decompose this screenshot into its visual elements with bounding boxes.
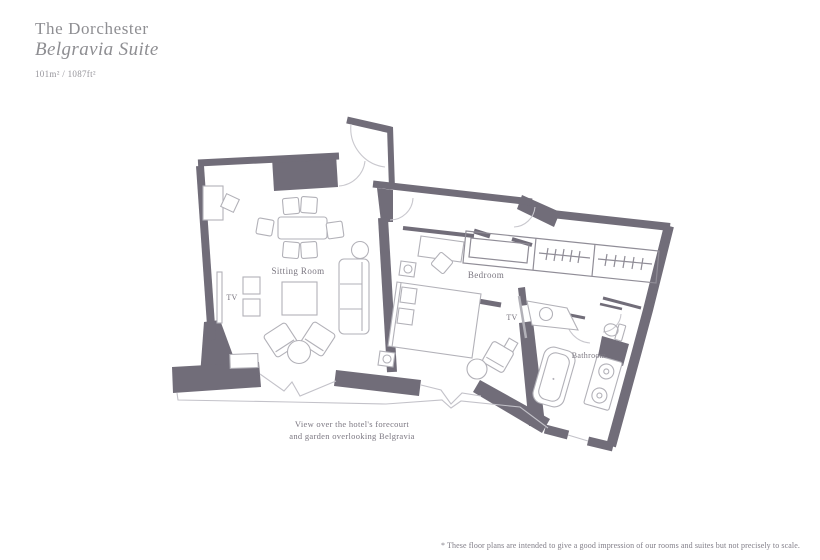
view-note-line1: View over the hotel's forecourt <box>295 419 410 429</box>
dining-chair <box>326 221 344 239</box>
sitting-door-arc <box>339 161 365 186</box>
bedroom-label: Bedroom <box>468 270 504 280</box>
tv-label-sitting: TV <box>226 293 237 302</box>
bathroom-label: Bathroom <box>572 351 607 360</box>
wall-bedroom-top <box>403 228 474 236</box>
dining-table <box>278 217 327 239</box>
pillow <box>400 287 417 304</box>
armchair <box>243 277 260 294</box>
tv-label-bedroom: TV <box>506 313 517 322</box>
sitting-room-label: Sitting Room <box>271 266 324 276</box>
wall-outer-top-a <box>373 184 532 202</box>
low-console <box>230 354 258 369</box>
wall-divider-stub <box>377 188 393 222</box>
dining-chair <box>282 241 299 258</box>
bath-window-line <box>568 435 588 441</box>
sliding-track-b2 <box>600 304 622 309</box>
coffee-table <box>282 282 317 315</box>
dining-chair <box>282 197 299 214</box>
closet-divider-2 <box>592 244 595 276</box>
wall-divider <box>383 218 392 372</box>
lamp <box>404 265 412 273</box>
bed <box>388 282 481 358</box>
lamp <box>383 355 391 363</box>
wall-bath-bottom-a <box>588 441 613 447</box>
vanity-double-sink <box>584 355 623 410</box>
view-note-line2: and garden overlooking Belgravia <box>289 431 415 441</box>
dining-chair <box>256 218 275 237</box>
dining-chair <box>300 196 317 213</box>
wall-entry-vertical <box>390 127 392 189</box>
bathtub <box>531 345 578 410</box>
wall-outer-top-b <box>552 214 670 227</box>
wall-entry-diagonal <box>347 120 391 130</box>
floor-plan-svg: Sitting Room Bedroom Bathroom TV TV View… <box>0 0 820 560</box>
sitting-room-furniture <box>203 186 369 368</box>
pillow <box>397 308 414 325</box>
tv-console <box>217 272 222 323</box>
bedroom-furniture <box>378 236 526 379</box>
bedroom-door-arc <box>390 198 413 220</box>
closet-divider-1 <box>533 238 536 270</box>
dining-chair <box>300 241 317 258</box>
dressing-sink <box>540 308 553 321</box>
scale-disclaimer: * These floor plans are intended to give… <box>441 541 800 550</box>
round-table <box>288 341 311 364</box>
side-table <box>352 242 369 259</box>
wall-bath-bottom-b <box>545 429 568 435</box>
floorplan-page: The Dorchester Belgravia Suite 101m² / 1… <box>0 0 820 560</box>
bedroom-round-table <box>467 359 487 379</box>
wall-divider-bottom-chunk <box>334 370 421 396</box>
sofa <box>339 259 369 334</box>
bay-window-sitting <box>260 374 336 396</box>
armchair <box>243 299 260 316</box>
console-table <box>203 186 223 220</box>
